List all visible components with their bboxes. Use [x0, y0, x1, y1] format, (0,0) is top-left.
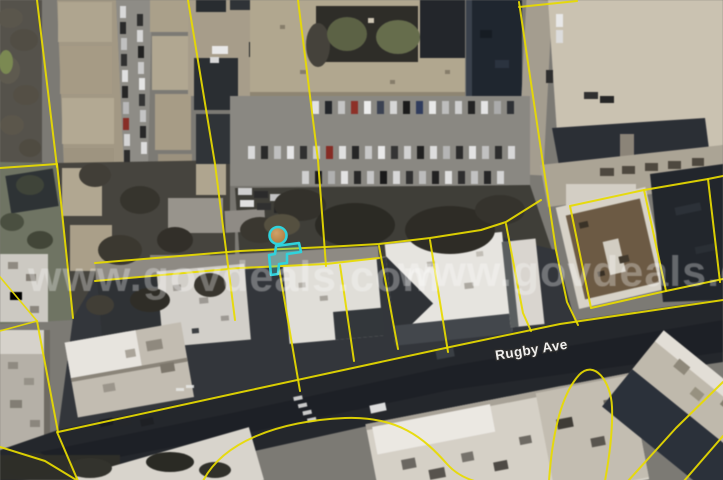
watermark-text-2: www.govdeals.com — [397, 248, 723, 296]
aerial-map-svg: Rugby Ave www.govdeals.com www.govdeals.… — [0, 0, 723, 480]
marker-head-icon — [270, 227, 287, 244]
watermark-text-1: www.govdeals.com — [27, 253, 441, 301]
watermark: www.govdeals.com www.govdeals.com — [27, 248, 723, 301]
building-complex-top — [250, 0, 465, 97]
aerial-map-view: Rugby Ave www.govdeals.com www.govdeals.… — [0, 0, 723, 480]
satellite-imagery — [0, 0, 723, 480]
